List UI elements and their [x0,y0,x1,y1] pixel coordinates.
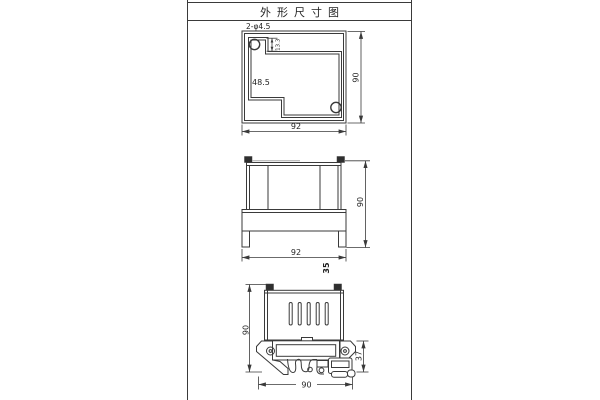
dim-label-front-width: 92 [291,248,301,257]
bracket-right-end [340,341,356,360]
device-body [265,290,344,340]
dim-label-din-rail-width: 35 [322,262,331,274]
dim-label-side-height: 90 [241,325,250,335]
ventilation-slots [289,303,328,326]
dim-front-width: 92 [242,248,346,262]
mounting-clip-left [245,157,253,163]
dim-label-hole-offset: 13.3 [276,38,282,51]
dim-label-inner-offset: 48.5 [252,78,270,87]
rear-view: 2-φ4.5 13.3 48.5 90 92 [242,22,365,136]
dim-side-height: 90 [241,285,266,373]
din-rail-assembly [257,338,356,378]
dim-hole-offset: 13.3 [267,38,282,51]
mounting-clip-left [266,284,274,290]
front-view: 90 92 35 [242,157,370,274]
dim-front-height: 90 [345,161,370,248]
mounting-clip-right [337,157,345,163]
din-rail-bar [273,341,340,360]
case-base [242,210,346,248]
dim-label-front-height: 90 [356,197,365,207]
dim-label-rear-width: 92 [291,122,301,131]
dim-label-rail-section-height: 37 [355,351,364,361]
dim-label-side-width: 90 [301,381,311,390]
hole-callout-label: 2-φ4.5 [246,22,271,31]
drawing-canvas: 2-φ4.5 13.3 48.5 90 92 [0,0,600,400]
case-body [247,163,342,210]
dim-rear-height: 90 [348,32,366,124]
dim-rail-section-height: 37 [355,341,369,372]
mounting-hole-bottom-right [331,102,341,112]
screw-right [341,347,349,355]
side-rail-view: 90 37 90 [241,284,368,390]
dim-label-rear-height: 90 [352,72,361,82]
rail-release-latch [317,358,355,377]
dim-rear-width: 92 [242,122,346,136]
mounting-clip-right [334,284,342,290]
dim-side-width: 90 [259,377,353,390]
outline-dimension-drawing: 外形尺寸图 2-φ4.5 13 [0,0,600,400]
